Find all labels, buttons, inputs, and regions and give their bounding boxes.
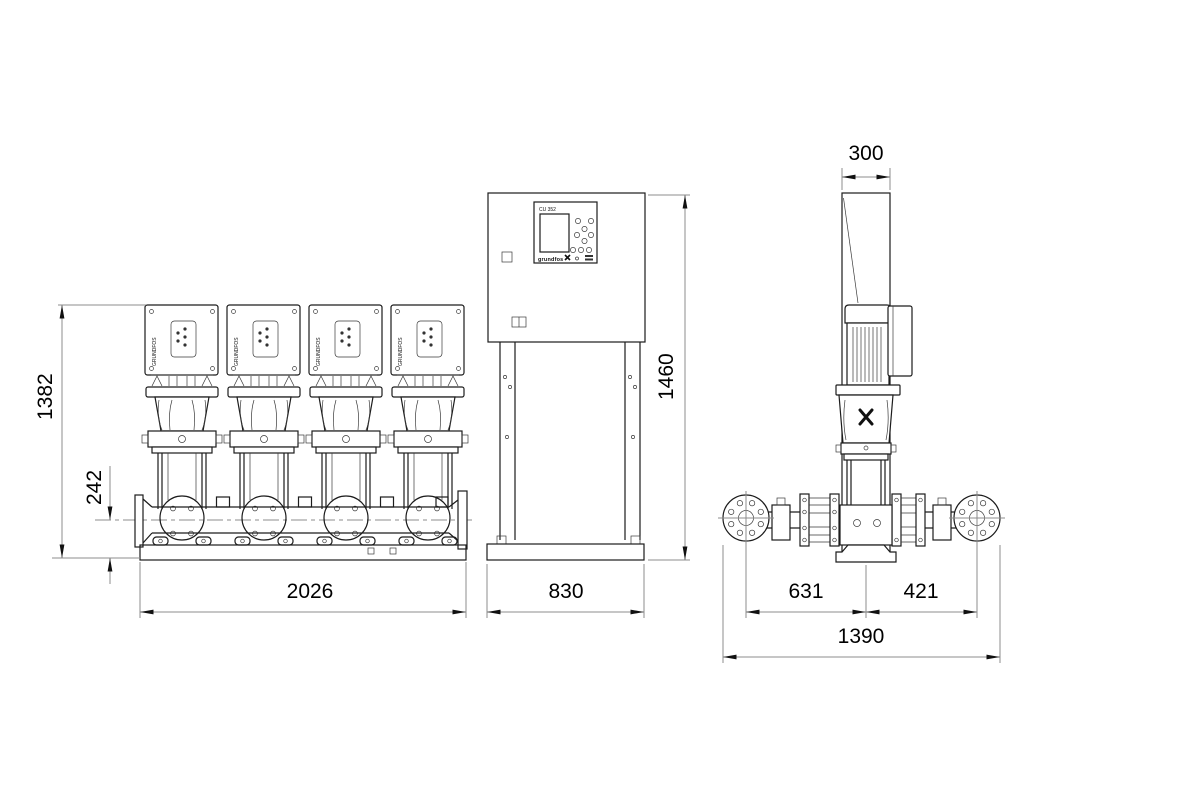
pump-unit-3 [306, 305, 386, 545]
front-view [95, 305, 472, 560]
dim-total-height: 1382 [34, 373, 57, 420]
base-frame [140, 545, 466, 560]
motor-top-cap [845, 305, 891, 323]
dim-cabinet-width: 830 [548, 580, 583, 603]
dim-center-to-outlet: 421 [903, 580, 938, 603]
brand-wordmark: grundfos [538, 257, 563, 263]
dim-total-depth: 1390 [838, 625, 885, 648]
control-cabinet-front: CU 352 grundfos [487, 193, 645, 560]
dim-inlet-to-center: 631 [788, 580, 823, 603]
side-view [718, 193, 1005, 562]
dim-base-length: 2026 [287, 580, 334, 603]
dim-manifold-center-height: 242 [83, 470, 106, 505]
discharge-line [892, 494, 956, 546]
isolating-valve-left [772, 505, 790, 540]
discharge-flange [949, 491, 1005, 545]
terminal-box [888, 306, 912, 376]
pump-system-dimension-drawing: GRUNDFOS [0, 0, 1200, 800]
cabinet-door [488, 193, 645, 342]
pump-base-block [840, 505, 892, 545]
pump-unit-4 [388, 305, 468, 545]
pump-unit-2 [224, 305, 304, 545]
dim-cabinet-height: 1460 [655, 353, 678, 400]
manifold-left-flange [135, 495, 143, 547]
suction-line [766, 494, 839, 546]
isolating-valve-right [933, 505, 951, 540]
manifold-right-flange [458, 491, 467, 549]
technical-drawing-page: GRUNDFOS [0, 0, 1200, 800]
pump-unit-1 [142, 305, 222, 545]
cabinet-stand [487, 342, 644, 560]
suction-flange [718, 491, 774, 545]
controller-model-label: CU 352 [539, 207, 556, 213]
dim-cabinet-depth: 300 [848, 142, 883, 165]
cabinet-base-plate [487, 544, 644, 560]
